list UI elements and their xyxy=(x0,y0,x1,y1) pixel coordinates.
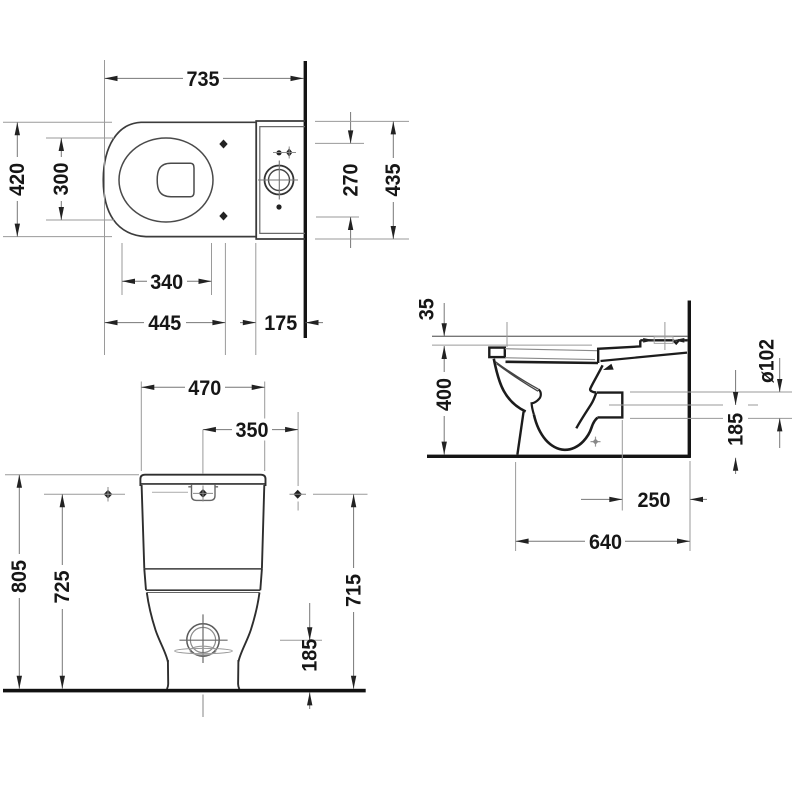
svg-text:445: 445 xyxy=(148,312,181,335)
svg-text:725: 725 xyxy=(51,570,74,603)
svg-text:185: 185 xyxy=(724,413,747,446)
svg-text:300: 300 xyxy=(50,163,73,196)
svg-text:400: 400 xyxy=(433,378,456,411)
svg-text:640: 640 xyxy=(589,531,622,554)
svg-text:185: 185 xyxy=(298,638,321,671)
svg-text:420: 420 xyxy=(6,163,29,196)
svg-text:270: 270 xyxy=(339,164,362,197)
svg-text:735: 735 xyxy=(187,68,220,91)
svg-text:ø102: ø102 xyxy=(755,339,778,383)
svg-text:435: 435 xyxy=(382,163,405,196)
svg-text:350: 350 xyxy=(236,419,269,442)
svg-text:340: 340 xyxy=(150,271,183,294)
svg-text:805: 805 xyxy=(8,560,31,593)
svg-text:715: 715 xyxy=(342,574,365,607)
svg-text:35: 35 xyxy=(415,298,438,320)
svg-text:250: 250 xyxy=(638,489,671,512)
svg-text:175: 175 xyxy=(264,312,297,335)
svg-text:470: 470 xyxy=(188,377,221,400)
